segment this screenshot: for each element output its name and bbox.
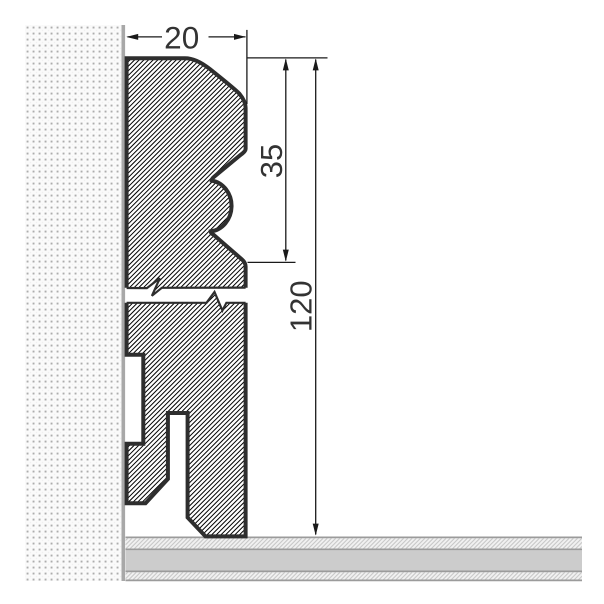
svg-text:35: 35 [254,144,289,178]
svg-text:120: 120 [283,280,318,332]
svg-text:20: 20 [164,19,199,55]
